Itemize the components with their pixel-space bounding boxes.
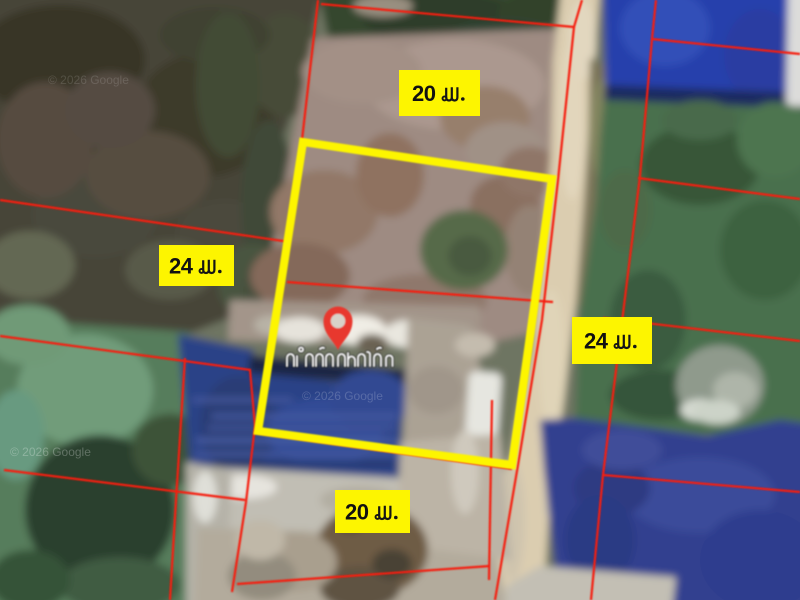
svg-text:20: 20 bbox=[412, 81, 436, 106]
svg-text:© 2026 Google: © 2026 Google bbox=[302, 389, 383, 403]
svg-text:© 2026 Google: © 2026 Google bbox=[48, 73, 129, 87]
svg-text:24: 24 bbox=[169, 254, 194, 279]
svg-text:© 2026 Google: © 2026 Google bbox=[10, 445, 91, 459]
svg-text:24: 24 bbox=[584, 329, 609, 354]
svg-text:20: 20 bbox=[345, 500, 369, 525]
